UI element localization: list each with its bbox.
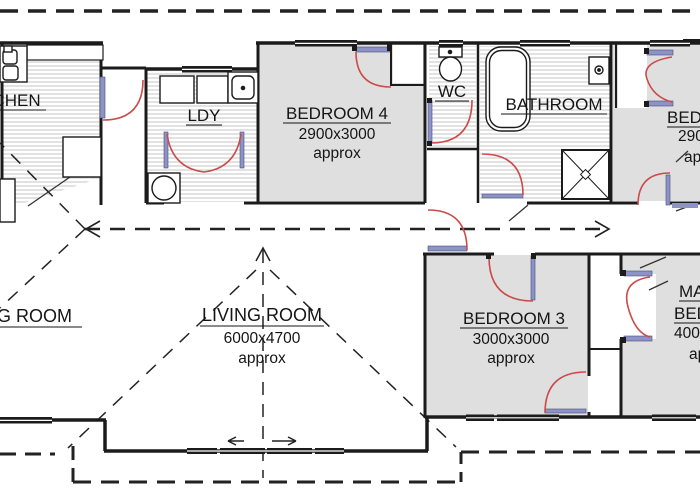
window-laundry-north xyxy=(182,66,232,73)
living-dims: 6000x4700 xyxy=(224,330,301,347)
master-approx: approx xyxy=(689,346,700,363)
toilet xyxy=(439,47,462,81)
jamb xyxy=(531,253,536,259)
laundry-appliance-2 xyxy=(197,76,228,103)
bedroom3-door-leaf xyxy=(531,256,535,300)
dining-name: DINING ROOM xyxy=(0,306,72,326)
floor-plan-canvas: KITCHEN LDY BEDROOM 4 2900x3000 approx W… xyxy=(0,0,700,500)
bedroom3-dims: 3000x3000 xyxy=(473,331,550,348)
bedroom3-approx: approx xyxy=(487,350,535,367)
living-approx: approx xyxy=(238,350,286,367)
washing-machine xyxy=(148,173,180,203)
kitchen-fridge-space xyxy=(63,137,101,177)
bedroom2-entry-door-leaf xyxy=(666,175,670,205)
master-name-line2: BEDROOM xyxy=(674,304,700,323)
bedroom4-name: BEDROOM 4 xyxy=(286,104,388,123)
bedroom2-wardrobe xyxy=(618,45,647,108)
window-bathroom-north xyxy=(520,40,570,47)
laundry-appliance-1 xyxy=(160,76,194,103)
kitchen-cabinet xyxy=(0,179,15,222)
kitchen-door-leaf xyxy=(100,77,105,118)
kitchen-name: KITCHEN xyxy=(0,91,41,110)
bedroom2-approx: approx xyxy=(684,149,700,166)
jamb xyxy=(352,44,357,51)
window-bedroom4-north xyxy=(295,40,357,47)
jamb xyxy=(620,337,626,343)
bedroom2-bifold-leaf-top xyxy=(647,50,673,55)
bedroom2-name: BEDROOM 2 xyxy=(667,108,700,127)
jamb xyxy=(486,253,491,259)
bathroom-vanity xyxy=(589,57,609,84)
bathtub xyxy=(486,47,530,131)
kitchen-sink-bowl-2 xyxy=(3,66,18,80)
label-dining: DINING ROOM xyxy=(0,306,82,327)
kitchen-tap xyxy=(4,46,12,52)
window-dining-south xyxy=(0,417,52,424)
label-bathroom: BATHROOM xyxy=(501,95,607,114)
master-name-line1: MASTER xyxy=(679,282,700,301)
bedroom3-name: BEDROOM 3 xyxy=(463,309,565,328)
bedroom3-wardrobe-door-leaf xyxy=(545,409,586,413)
window-hall-east xyxy=(672,203,698,208)
wc-name: WC xyxy=(438,82,466,101)
bathroom-door-leaf xyxy=(482,194,523,198)
jamb xyxy=(387,44,392,51)
bedroom3-wardrobe xyxy=(591,255,619,416)
window-wc-north xyxy=(439,40,463,47)
bedroom4-entry-nook xyxy=(393,44,423,83)
bathroom-name: BATHROOM xyxy=(506,95,603,114)
laundry-tub xyxy=(228,72,258,103)
bedroom2-dims: 2900x3000 xyxy=(678,128,700,145)
window-bedroom3-south xyxy=(466,415,559,422)
bedroom4-approx: approx xyxy=(313,145,361,162)
jamb xyxy=(620,270,626,276)
master-bifold-leaf-top xyxy=(624,271,652,276)
living-name: LIVING ROOM xyxy=(202,305,322,325)
label-laundry: LDY xyxy=(186,106,222,125)
window-bedroom2-north xyxy=(650,40,690,47)
laundry-name: LDY xyxy=(187,106,220,125)
master-dims: 4000x3000 xyxy=(674,325,700,342)
wc-door-leaf xyxy=(428,100,432,143)
label-kitchen: KITCHEN xyxy=(0,91,46,110)
window-master-south xyxy=(652,415,696,422)
shower xyxy=(562,150,609,199)
jamb xyxy=(427,141,432,146)
bedroom4-door-leaf xyxy=(356,47,390,52)
label-wc: WC xyxy=(435,82,469,101)
jamb xyxy=(644,48,649,54)
lobby-door-leaf xyxy=(428,246,467,251)
bedroom4-dims: 2900x3000 xyxy=(299,126,376,143)
jamb xyxy=(427,98,432,103)
jamb xyxy=(644,101,649,107)
floor-plan-drawing: KITCHEN LDY BEDROOM 4 2900x3000 approx W… xyxy=(0,0,700,500)
